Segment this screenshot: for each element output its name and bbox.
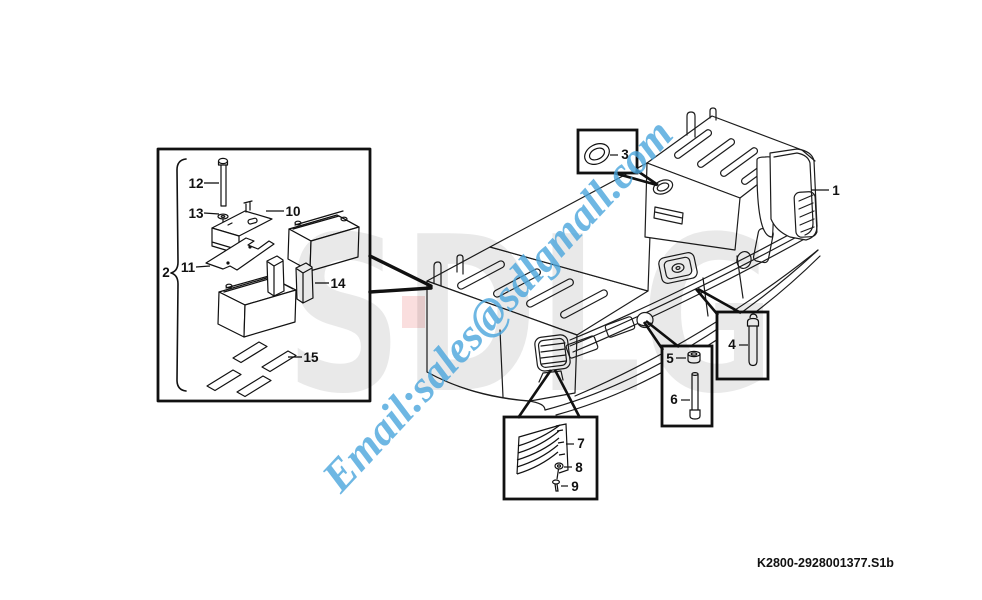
parts-diagram-page: 1 2 3 4 5 6 7 8 9 10 11 12 13 14 15 SDLG… [0,0,982,600]
part-label-11: 11 [181,260,196,275]
part-label-12: 12 [188,176,203,191]
diagram-canvas: 1 2 3 4 5 6 7 8 9 10 11 12 13 14 15 SDLG… [0,0,982,600]
part-label-8: 8 [575,460,583,475]
part-label-1: 1 [832,183,840,198]
sdlg-logo-watermark: SDLG [285,190,775,441]
part-label-13: 13 [188,206,204,221]
part-label-9: 9 [571,479,579,494]
part-label-2: 2 [162,265,170,280]
document-code: K2800-2928001377.S1b [757,556,894,570]
